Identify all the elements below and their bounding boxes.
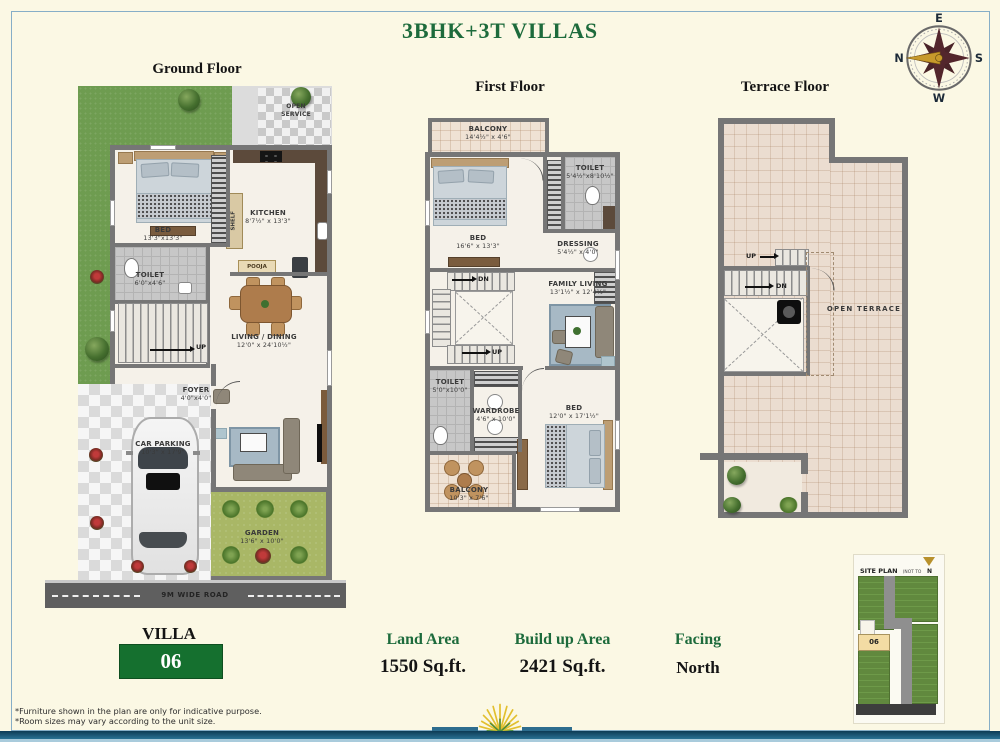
wall <box>226 150 230 246</box>
lawn-top <box>78 86 232 148</box>
staircase-graphic <box>118 303 208 363</box>
coffee-table-graphic <box>240 433 267 452</box>
wall <box>428 451 516 455</box>
first-dressing-label: DRESSING5'4½" x 4'0" <box>543 240 613 257</box>
flower-bush-icon <box>90 270 104 284</box>
first-bed1-label: BED16'6" x 13'3" <box>443 234 513 251</box>
site-plot-small <box>860 620 875 635</box>
dn-arrowhead-icon <box>472 276 477 282</box>
dn-arrow-icon <box>745 286 769 288</box>
dresser-graphic <box>448 257 500 267</box>
wall <box>718 512 908 518</box>
first-toilet1-label: TOILET5'4½"x8'10½" <box>555 164 625 181</box>
tree-icon <box>178 89 200 111</box>
compass-s: S <box>975 52 983 65</box>
wall <box>211 364 216 386</box>
pillow-graphic <box>589 430 601 456</box>
terrace-tile-right <box>830 159 904 514</box>
wall <box>543 157 547 233</box>
pillow-graphic <box>589 458 601 484</box>
first-bed2-label: BED12'0" x 17'1½" <box>539 404 609 421</box>
window <box>327 170 332 194</box>
wall <box>543 268 620 272</box>
chair-graphic <box>468 460 484 476</box>
villa-number-badge: 06 <box>119 644 223 679</box>
dn-arrow-icon <box>452 279 472 281</box>
flower-bush-icon <box>255 548 271 564</box>
staircase-graphic <box>775 249 809 266</box>
staircase-graphic <box>432 289 451 347</box>
first-dn-label: DN <box>478 276 489 283</box>
wall <box>718 118 835 124</box>
page-title: 3BHK+3T VILLAS <box>300 18 700 44</box>
wall <box>720 372 810 376</box>
up-arrowhead-icon <box>774 253 779 259</box>
stove-icon <box>260 151 282 162</box>
pillow-graphic <box>438 169 465 184</box>
site-highlighted-plot: 06 <box>858 634 890 651</box>
up-arrow-icon <box>462 352 486 354</box>
up-arrow-icon <box>150 349 190 351</box>
palm-plant-icon <box>779 497 798 513</box>
wall <box>545 118 549 156</box>
wall <box>700 453 808 460</box>
wc-icon <box>433 426 448 445</box>
wall <box>211 409 216 492</box>
terrace-dn-label: DN <box>776 283 787 290</box>
terrace-floor-heading: Terrace Floor <box>695 78 875 96</box>
tree-icon <box>85 337 109 361</box>
wall <box>428 268 545 272</box>
side-table-graphic <box>118 152 133 164</box>
window <box>615 250 620 280</box>
flower-bush-icon <box>131 560 144 573</box>
ground-garden-label: GARDEN13'6" x 10'0" <box>227 529 297 546</box>
site-plan-north-label: N <box>927 569 932 575</box>
wall <box>902 157 908 518</box>
site-bottom-road <box>856 704 936 715</box>
first-up-label: UP <box>492 349 502 356</box>
table-plant-icon <box>573 327 581 335</box>
up-arrowhead-icon <box>486 349 491 355</box>
window <box>110 310 115 332</box>
plant-icon <box>723 497 741 513</box>
wall <box>801 460 808 474</box>
garden-wall <box>326 492 332 580</box>
facing-label: Facing <box>648 630 748 649</box>
plant-icon <box>222 500 240 518</box>
land-area-value: 1550 Sq.ft. <box>363 656 483 679</box>
sofa-graphic <box>283 418 300 474</box>
first-balcony-top-label: BALCONY14'4½" x 4'6" <box>453 125 523 142</box>
wall <box>110 145 115 387</box>
ground-up-label: UP <box>196 344 206 351</box>
flower-bush-icon <box>90 516 104 530</box>
brochure-canvas: 3BHK+3T VILLAS E S W N Ground Floor SHEL… <box>0 0 1000 742</box>
villa-label: VILLA <box>119 624 219 644</box>
wall <box>615 152 620 512</box>
pillow-graphic <box>171 162 200 177</box>
road-dash-line <box>248 595 340 597</box>
ground-living-label: LIVING / DINING12'0" x 24'10½" <box>229 333 299 350</box>
window <box>150 145 176 150</box>
plant-icon <box>222 546 240 564</box>
ground-floor-heading: Ground Floor <box>107 60 287 78</box>
compass-w: W <box>933 92 946 104</box>
staircase-graphic <box>724 270 808 296</box>
chair-graphic <box>444 460 460 476</box>
wall <box>428 366 523 370</box>
footnote-2: *Room sizes may vary according to the un… <box>15 716 335 727</box>
wall <box>428 118 432 156</box>
wall <box>115 364 210 368</box>
car-rear-window-graphic <box>139 532 187 548</box>
dn-arrowhead-icon <box>769 283 774 289</box>
window <box>110 200 115 226</box>
window <box>540 507 580 512</box>
table-plant-icon <box>261 300 269 308</box>
land-area-label: Land Area <box>363 630 483 649</box>
wall <box>230 272 327 276</box>
wc-icon <box>585 186 600 205</box>
blanket-graphic <box>136 193 212 219</box>
terrace-up-label: UP <box>746 253 756 260</box>
flower-bush-icon <box>184 560 197 573</box>
plant-icon <box>290 546 308 564</box>
build-area-label: Build up Area <box>495 630 630 649</box>
first-floor-heading: First Floor <box>420 78 600 96</box>
wall <box>115 243 230 247</box>
plant-icon <box>256 500 274 518</box>
site-plot-block <box>858 650 890 706</box>
window <box>425 200 430 226</box>
staircase-graphic <box>447 345 515 364</box>
window <box>327 350 332 386</box>
blanket-graphic <box>433 198 507 220</box>
road-dash-line <box>52 595 140 597</box>
window <box>615 420 620 450</box>
first-toilet2-label: TOILET5'0"x10'0" <box>415 378 485 395</box>
water-tank-lid <box>783 306 795 318</box>
wall <box>543 229 616 233</box>
compass-e: E <box>935 12 943 25</box>
pillow-graphic <box>141 162 170 178</box>
wall <box>829 157 908 163</box>
road-label: 9M WIDE ROAD <box>145 592 245 599</box>
wall <box>425 152 620 157</box>
wall <box>110 145 332 150</box>
up-arrowhead-icon <box>190 346 195 352</box>
bottom-accent-band <box>0 731 1000 739</box>
sofa-graphic <box>595 306 614 358</box>
first-family-label: FAMILY LIVING13'1½" x 12'4½" <box>543 280 613 297</box>
up-arrow-icon <box>760 256 774 258</box>
build-area-value: 2421 Sq.ft. <box>495 656 630 679</box>
wall <box>327 145 332 496</box>
compass-rose-icon: E S W N <box>893 12 985 104</box>
facing-value: North <box>648 658 748 678</box>
first-wardrobe-label: WARDROBE4'6" x 10'0" <box>461 407 531 424</box>
open-service-label: OPEN SERVICE <box>266 103 326 119</box>
site-road <box>884 576 895 624</box>
ground-kitchen-label: KITCHEN8'7½" x 13'3" <box>233 209 303 226</box>
first-balcony-bottom-label: BALCONY10'3" x 7'6" <box>434 486 504 503</box>
pillow-graphic <box>468 169 495 183</box>
window <box>425 310 430 334</box>
blanket-graphic <box>545 424 567 488</box>
ground-toilet-label: TOILET6'0"x4'6" <box>115 271 185 288</box>
wall <box>545 366 618 370</box>
ground-foyer-label: FOYER4'0"x4'0" <box>161 386 231 403</box>
flower-bush-icon <box>89 448 103 462</box>
compass-n: N <box>894 52 903 65</box>
terrace-open-label: OPEN TERRACE <box>822 305 906 314</box>
site-road <box>901 624 912 704</box>
ground-carparking-label: CAR PARKING10'3" x 17'9" <box>128 440 198 457</box>
wall <box>425 507 620 512</box>
plant-icon <box>727 466 746 485</box>
car-sunroof-graphic <box>146 473 180 490</box>
tv-unit-graphic <box>317 424 322 462</box>
site-plan-north-arrow-icon <box>923 557 935 566</box>
wall <box>206 247 210 304</box>
site-plot-block <box>894 576 938 622</box>
ground-bed-label: BED13'3"x13'3" <box>128 226 198 243</box>
wall <box>801 492 808 514</box>
wall <box>512 455 516 512</box>
plant-icon <box>290 500 308 518</box>
wall <box>428 118 549 122</box>
